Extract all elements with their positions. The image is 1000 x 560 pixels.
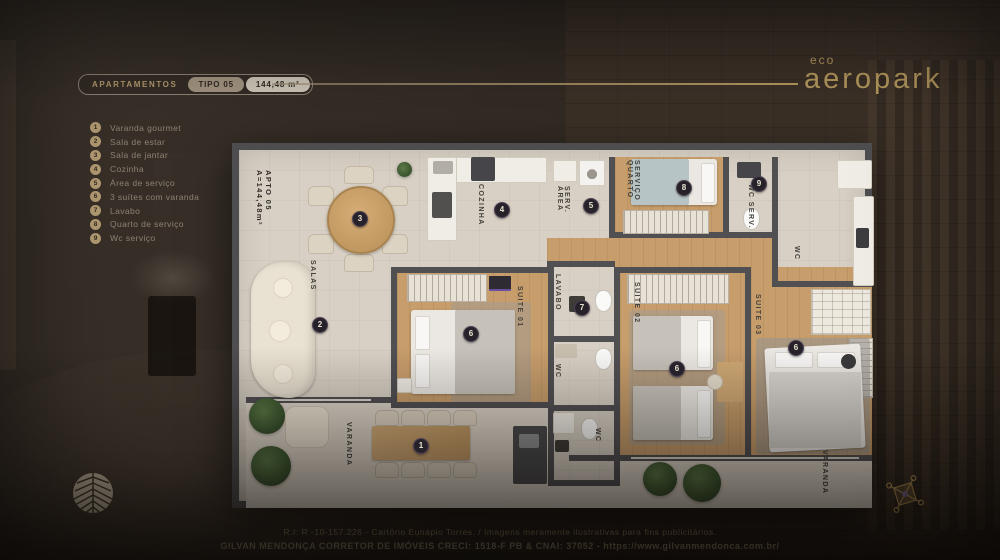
marker-suite01: 6 — [463, 326, 479, 342]
toilet — [595, 290, 612, 312]
legend-badge: 1 — [90, 122, 101, 133]
plant — [683, 464, 721, 502]
sink-counter — [555, 344, 577, 358]
dining-chair — [308, 234, 334, 254]
varanda-chair — [375, 410, 399, 426]
blanket — [769, 372, 861, 448]
label-salas: SALAS — [309, 260, 316, 312]
label-quarto-servico: QUARTO SERVIÇO — [626, 160, 640, 224]
washing-machine — [579, 160, 605, 186]
wall — [554, 405, 614, 411]
marker-sala-estar: 2 — [312, 317, 328, 333]
varanda-chair — [427, 462, 451, 478]
plant — [251, 446, 291, 486]
gourmet-sink — [519, 434, 539, 448]
tv — [489, 276, 511, 291]
marker-cozinha: 4 — [494, 202, 510, 218]
legend-label: Sala de jantar — [110, 150, 168, 160]
pillow — [697, 320, 711, 368]
legend-label: Sala de estar — [110, 137, 165, 147]
legend-item: 1Varanda gourmet — [90, 121, 199, 135]
label-varanda-left: VARANDA — [345, 422, 352, 478]
label-varanda-right: VARANDA — [821, 450, 828, 504]
legend-label: Varanda gourmet — [110, 123, 181, 133]
legend-item: 63 suítes com varanda — [90, 190, 199, 204]
legend-label: 3 suítes com varanda — [110, 192, 199, 202]
legend-badge: 2 — [90, 136, 101, 147]
varanda-chair — [375, 462, 399, 478]
stove — [432, 192, 452, 218]
pouf — [841, 354, 856, 369]
apartments-label: APARTAMENTOS — [92, 80, 177, 89]
header-chip-group: APARTAMENTOS TIPO 05 144,48 m² — [78, 74, 313, 95]
wall — [609, 157, 615, 238]
area-chip: 144,48 m² — [246, 77, 310, 92]
legend-badge: 8 — [90, 219, 101, 230]
marker-suite03: 6 — [788, 340, 804, 356]
desk-chair — [707, 374, 723, 390]
label-cozinha: COZINHA — [477, 184, 484, 242]
footer-legal-line: R.I: R -10-157.226 - Cartório Eunápio To… — [0, 527, 1000, 537]
varanda-chair — [453, 410, 477, 426]
sink — [555, 440, 569, 452]
legend-label: Cozinha — [110, 164, 144, 174]
legend-item: 2Sala de estar — [90, 135, 199, 149]
logo-aeropark: aeropark — [804, 63, 942, 96]
varanda-connector-floor — [548, 486, 620, 508]
apto-label: APTO 05 A=144,48m² — [255, 170, 273, 254]
wall — [391, 267, 554, 273]
wall — [614, 267, 620, 486]
legend-label: Quarto de serviço — [110, 219, 184, 229]
label-wc-bottom: WC — [594, 428, 601, 452]
sofa-cushion — [273, 364, 293, 384]
legend-item: 3Sala de jantar — [90, 149, 199, 163]
background-wardrobe-edge — [0, 40, 16, 370]
label-area-servico: ÁREA SERV. — [556, 186, 570, 230]
bath-sink — [856, 228, 869, 248]
label-suite02: SUITE 02 — [633, 282, 640, 332]
label-wc-servico: WC SERV. — [747, 184, 754, 230]
blanket — [455, 310, 515, 394]
wardrobe — [407, 274, 487, 302]
pillow — [697, 390, 711, 438]
wall — [547, 261, 615, 267]
floor-plan: APTO 05 A=144,48m² SALAS COZINHA ÁREA SE… — [232, 143, 872, 508]
legend-badge: 3 — [90, 150, 101, 161]
legend-badge: 5 — [90, 178, 101, 189]
varanda-chair — [401, 462, 425, 478]
armchair — [285, 406, 329, 448]
pillow — [415, 316, 430, 350]
legend-label: Área de serviço — [110, 178, 175, 188]
marker-suite02: 6 — [669, 361, 685, 377]
label-wc-top: WC — [793, 246, 800, 270]
footer-broker-line: GILVAN MENDONÇA CORRETOR DE IMÓVEIS CREC… — [0, 541, 1000, 551]
shower — [837, 160, 872, 189]
blanket — [633, 386, 681, 440]
plant — [249, 398, 285, 434]
marker-wc-servico: 9 — [751, 176, 767, 192]
pillow — [415, 354, 430, 388]
dining-chair — [344, 166, 374, 184]
dining-chair — [344, 254, 374, 272]
marker-varanda-gourmet: 1 — [413, 438, 429, 454]
label-suite03: SUITE 03 — [754, 294, 761, 346]
wardrobe — [627, 274, 729, 304]
background-vase-silhouette — [148, 296, 196, 376]
wall — [745, 267, 751, 460]
legend-label: Lavabo — [110, 206, 140, 216]
laundry-tank — [553, 160, 577, 182]
wall — [620, 267, 751, 273]
legend-badge: 6 — [90, 191, 101, 202]
legend-item: 5Área de serviço — [90, 176, 199, 190]
header-divider-line — [272, 83, 798, 85]
fridge — [471, 157, 495, 181]
legend-item: 8Quarto de serviço — [90, 218, 199, 232]
shower — [553, 412, 575, 434]
shelving-unit — [811, 289, 871, 335]
legend: 1Varanda gourmet 2Sala de estar 3Sala de… — [90, 121, 199, 245]
pillow — [701, 163, 715, 203]
varanda-chair — [427, 410, 451, 426]
wall — [772, 157, 778, 287]
legend-item: 4Cozinha — [90, 162, 199, 176]
wall — [548, 480, 620, 486]
varanda-chair — [401, 410, 425, 426]
label-lavabo: LAVABO — [554, 274, 561, 322]
legend-badge: 9 — [90, 233, 101, 244]
page: APARTAMENTOS TIPO 05 144,48 m² eco aerop… — [0, 0, 1000, 560]
sofa-cushion — [269, 320, 291, 342]
sofa-cushion — [273, 278, 293, 298]
wall — [554, 336, 614, 342]
leaf-ornament — [71, 471, 115, 515]
compass-rose-icon — [883, 472, 927, 516]
nightstand — [397, 378, 412, 393]
label-suite01: SUITE 01 — [516, 286, 523, 336]
toilet — [595, 348, 612, 370]
wall — [391, 402, 554, 408]
marker-lavabo: 7 — [574, 300, 590, 316]
plant — [397, 162, 412, 177]
plant — [643, 462, 677, 496]
legend-item: 9Wc serviço — [90, 231, 199, 245]
wall — [723, 157, 729, 238]
background-wood-slats — [868, 60, 1000, 530]
legend-badge: 4 — [90, 164, 101, 175]
type-chip: TIPO 05 — [188, 77, 243, 92]
label-wc-mid: WC — [554, 364, 561, 388]
marker-sala-jantar: 3 — [352, 211, 368, 227]
legend-badge: 7 — [90, 205, 101, 216]
legend-label: Wc serviço — [110, 233, 156, 243]
marker-area-servico: 5 — [583, 198, 599, 214]
legend-item: 7Lavabo — [90, 204, 199, 218]
marker-quarto-servico: 8 — [676, 180, 692, 196]
varanda-chair — [453, 462, 477, 478]
kitchen-sink — [433, 161, 453, 174]
